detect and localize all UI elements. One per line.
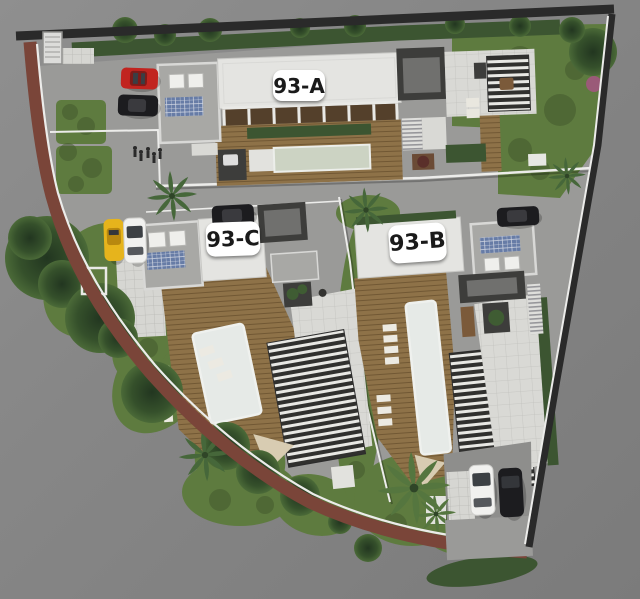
unit-badge-93-c[interactable]: 93-C [205, 221, 260, 257]
unit-badge-93-a[interactable]: 93-A [273, 70, 325, 101]
car-white-parked-left [123, 218, 150, 268]
solar-panels-93a [165, 96, 204, 116]
entry-gate [43, 32, 62, 64]
pool-93a [274, 145, 371, 172]
solar-panels-93b [480, 235, 521, 254]
site-plan: 93-A 93-C 93-B [0, 0, 640, 599]
solar-panels-93c [146, 250, 185, 270]
driveway [445, 516, 533, 560]
unit-badge-93-b[interactable]: 93-B [388, 222, 448, 264]
